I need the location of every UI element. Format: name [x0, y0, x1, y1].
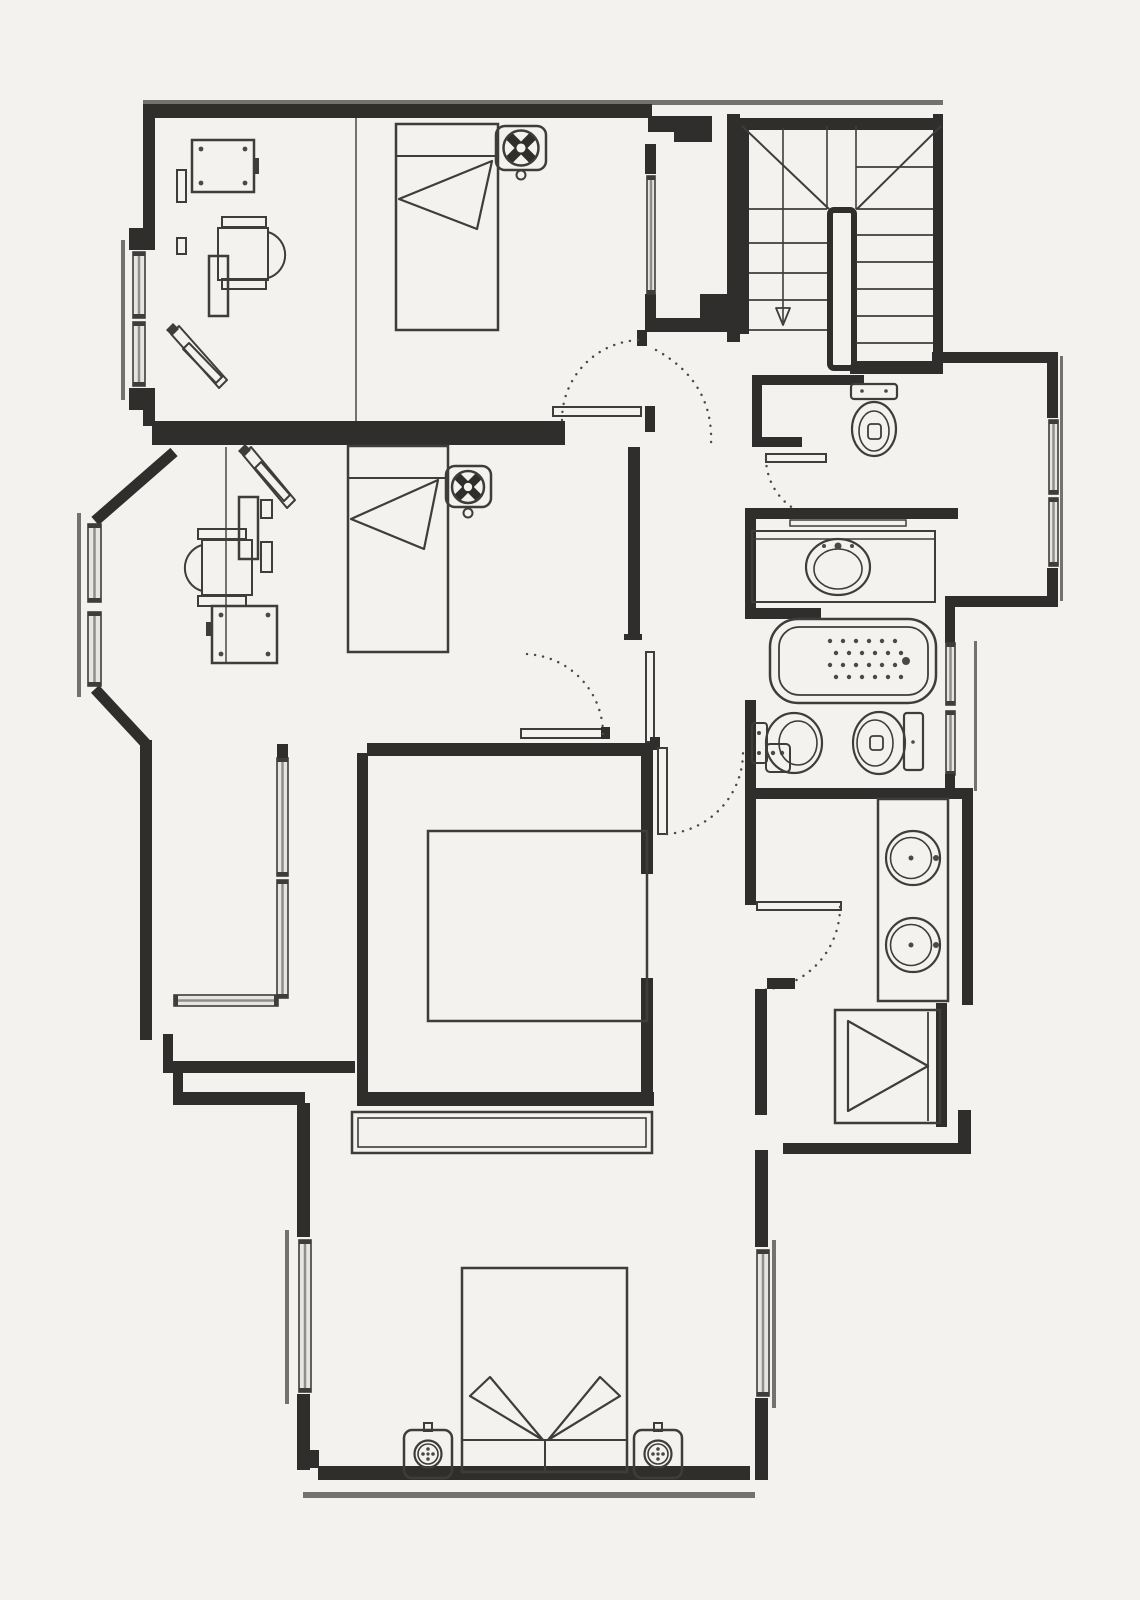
bathtub-antislip-dot [854, 663, 858, 667]
sill-bump-outer [1060, 356, 1063, 601]
toilet-bowl-inner [859, 411, 889, 451]
shower-triangle [848, 1021, 928, 1111]
window-bedroom1-lower-cap [133, 382, 145, 386]
window-closet-slider-cap [647, 176, 655, 180]
wall-terrace-glazing-nib [277, 744, 288, 758]
window-bath-right-2-cap [946, 711, 955, 715]
bedroom1-chair-back [268, 232, 285, 278]
wall-closet-inner-step [700, 294, 727, 320]
wall-closet-bottom [645, 318, 740, 332]
wall-bump-right-lower [1047, 568, 1058, 600]
bedroom1-bed-fold [399, 161, 492, 229]
door-hall-leaf [658, 748, 667, 834]
bedroom2-table-dot-1 [219, 613, 224, 618]
wall-basin-shelf [745, 508, 958, 519]
wall-dressing-top [367, 743, 653, 756]
bedroom2-table-dot-4 [266, 652, 271, 657]
wall-landing-foot [637, 330, 647, 346]
nightstand-left-lamp-dot [421, 1452, 425, 1456]
master-wardrobe-inner [358, 1118, 646, 1147]
wall-hall-right-1 [745, 519, 756, 609]
bedroom2-guitar-head [238, 444, 251, 457]
window-bump-lower-cap [1049, 498, 1058, 502]
window-terrace-horizontal-cap [174, 995, 178, 1006]
bedroom2-ceiling-fan-hub [464, 483, 472, 491]
arc-hall-door [667, 753, 743, 834]
master-bed-fold-right [548, 1377, 620, 1440]
bedroom2-bed-fold [351, 480, 438, 549]
wall-left-lower [140, 740, 152, 1040]
stairs-winder-diag-left [742, 126, 829, 209]
shower-tray [835, 1010, 940, 1123]
window-bedroom1-lower-cap [133, 322, 145, 326]
bathtub-antislip-dot [854, 639, 858, 643]
bedroom1-chair-bar-top [222, 217, 266, 227]
wall-bedroom1-left [143, 118, 155, 232]
bedroom1-ceiling-fan-knob [517, 171, 526, 180]
wall-bath-bottom [745, 788, 973, 799]
bedroom2-table-dot-2 [266, 613, 271, 618]
bathtub-antislip-dot [834, 675, 838, 679]
wall-wc-stub [752, 437, 802, 447]
basin-counter [752, 531, 935, 602]
wall-exterior-right-upper [933, 114, 943, 359]
sill-bay2-outer [77, 513, 81, 697]
wall-bump-right-upper [1047, 352, 1058, 418]
door-bedroom1-leaf [553, 407, 641, 416]
bedroom1-ceiling-fan-hub [516, 143, 525, 152]
window-bedroom2-upper-cap [88, 598, 101, 602]
wall-stairs-left [740, 118, 749, 334]
wall-hall-right-3 [745, 799, 756, 905]
master-bed-fold-left [470, 1377, 543, 1440]
floor-plan-page [0, 0, 1140, 1600]
bathtub-antislip-dot [873, 675, 877, 679]
wall-stairs-bottom-right [850, 361, 943, 374]
sill-bay1-outer [121, 240, 125, 400]
bathtub-antislip-dot [899, 675, 903, 679]
sill-bath-right-outer [974, 641, 977, 791]
window-bedroom2-lower-cap [88, 612, 101, 616]
nightstand-right-lamp-dot [656, 1447, 660, 1451]
nightstand-left-lamp-center [426, 1452, 429, 1455]
sill-master-right [772, 1240, 776, 1408]
toilet-tank-dot-1 [860, 389, 864, 393]
wall-closet-stairs-divider [727, 114, 740, 342]
bedroom1-table-tab [254, 158, 259, 174]
duct-dot-1 [771, 751, 775, 755]
bedroom2-zone-line [225, 447, 227, 663]
bedroom1-guitar-head [166, 323, 179, 336]
window-bath-right-1-cap [946, 643, 955, 647]
bathtub-antislip-dot [899, 651, 903, 655]
bathtub-antislip-dot [893, 663, 897, 667]
nightstand-right-lamp-center [656, 1452, 659, 1455]
nightstand-left-lamp-dot [431, 1452, 435, 1456]
bathtub-antislip-dot [880, 663, 884, 667]
wall-nib-bedroom1-door [645, 406, 655, 432]
bidet-dot-2 [757, 751, 761, 755]
window-bump-upper-cap [1049, 420, 1058, 424]
bathtub-antislip-dot [860, 675, 864, 679]
bathtub-antislip-dot [886, 675, 890, 679]
dots-landing-path [656, 350, 711, 445]
toilet-tank-dot-2 [884, 389, 888, 393]
wall-master-left-upper [297, 1103, 310, 1237]
line-master-bottom-outer [303, 1492, 755, 1498]
wall-right-stub-1 [945, 605, 955, 643]
wall-wc-left [752, 375, 762, 439]
bathtub-antislip-dot [847, 651, 851, 655]
window-master-right-cap [757, 1250, 769, 1254]
wall-wc-top [752, 375, 864, 385]
window-terrace-horizontal-cap [274, 995, 278, 1006]
nightstand-right-lamp-dot [661, 1452, 665, 1456]
wall-dressing-left [357, 753, 368, 1103]
bedroom1-table-dot-1 [199, 147, 204, 152]
window-bump-lower-cap [1049, 562, 1058, 566]
double-sink-counter [878, 799, 948, 1001]
bedroom1-wall-item-1 [177, 170, 186, 202]
bathtub-antislip-dot [860, 651, 864, 655]
sink-basin-1-faucet [933, 855, 939, 861]
bedroom1-wall-item-2 [177, 238, 186, 254]
window-bump-upper-cap [1049, 490, 1058, 494]
door-dressing-leaf [521, 729, 603, 738]
bedroom2-chair-back [185, 545, 202, 591]
bedroom2-wall-item-1 [261, 500, 272, 518]
bathtub-outer [770, 619, 936, 703]
window-terrace-vertical-upper-cap [277, 758, 288, 762]
window-master-left-cap [299, 1388, 311, 1392]
bathtub-antislip-dot [867, 663, 871, 667]
wall-bedroom2-right [628, 447, 640, 639]
wall-hall-right-2 [745, 700, 756, 792]
door-bedroom2-leaf [646, 652, 654, 742]
bathtub-antislip-dot [828, 663, 832, 667]
bedroom2-table-tab [206, 622, 211, 636]
wall-master-right-upper [755, 1150, 768, 1247]
sill-master-left [285, 1230, 289, 1404]
toilet-tank [851, 384, 897, 399]
bathtub-antislip-dot [880, 639, 884, 643]
wall-basin-bottom [745, 608, 821, 619]
bathtub-antislip-dot [893, 639, 897, 643]
nightstand-left-lamp-dot [426, 1447, 430, 1451]
bathtub-antislip-dot [841, 639, 845, 643]
bedroom1-bed [396, 124, 498, 330]
stairs-center-wall [830, 210, 854, 368]
bedroom1-table-dot-4 [243, 181, 248, 186]
toilet-flush [868, 424, 881, 439]
window-bedroom2-lower-cap [88, 682, 101, 686]
wall-master-topleft-exterior [173, 1092, 305, 1105]
bedroom2-guitar-neck [255, 462, 290, 501]
wall-closet-left-upper [645, 144, 656, 174]
door-wc-leaf [766, 454, 826, 462]
wall-bump-top [932, 352, 1058, 363]
window-bedroom1-upper-cap [133, 314, 145, 318]
bedroom2-bed [348, 446, 448, 652]
wall-master-left-step [303, 1450, 319, 1468]
window-bath-right-1-cap [946, 701, 955, 705]
wc2-flush [870, 736, 883, 750]
wall-bay2-diagonal-bottom [95, 689, 147, 745]
bedroom2-ceiling-fan-knob [464, 509, 473, 518]
bathtub-antislip-dot [834, 651, 838, 655]
bathtub-antislip-dot [828, 639, 832, 643]
bathtub-antislip-dot [873, 651, 877, 655]
bedroom2-chair-bar-bottom [198, 596, 246, 606]
bathtub-antislip-dot [841, 663, 845, 667]
arc-dressing-door [523, 654, 603, 734]
wall-shower-bottom [783, 1143, 971, 1154]
wall-bedroom-divider [152, 421, 565, 445]
wall-bay1-stub-top [129, 228, 155, 250]
bathtub-antislip-dot [886, 651, 890, 655]
nightstand-right-lamp-dot [651, 1452, 655, 1456]
washbasin-handle-2 [850, 544, 854, 548]
wall-master-right-lower [755, 1398, 768, 1480]
nightstand-right-lamp-dot [656, 1457, 660, 1461]
wc2-tank-dot [911, 740, 915, 744]
arc-sinkroom-door [757, 907, 840, 990]
wall-bedroom1-top [143, 104, 652, 118]
wall-terrace-bottom [163, 1061, 355, 1073]
sink-basin-2-faucet [933, 942, 939, 948]
window-master-right-cap [757, 1392, 769, 1396]
wc2-bowl-inner [857, 720, 893, 766]
window-closet-slider-cap [647, 290, 655, 294]
window-bedroom1-upper-cap [133, 252, 145, 256]
bathtub-antislip-dot [867, 639, 871, 643]
bathtub-drain [902, 657, 910, 665]
wall-closet-notch [648, 132, 674, 142]
dressing-island [428, 831, 647, 1021]
bedroom1-table-dot-3 [199, 181, 204, 186]
washbasin-handle-1 [822, 544, 826, 548]
door-sinkroom-leaf [757, 902, 841, 910]
washbasin-inner [814, 549, 862, 589]
window-master-left-cap [299, 1240, 311, 1244]
sink-basin-2-center [909, 943, 914, 948]
bedroom1-zone-line [355, 118, 357, 421]
bedroom1-table-dot-2 [243, 147, 248, 152]
floor-plan-canvas [0, 0, 1140, 1600]
window-bedroom2-upper-cap [88, 524, 101, 528]
basin-mirror [790, 520, 906, 526]
window-terrace-vertical-lower-cap [277, 880, 288, 884]
bathtub-antislip-dot [847, 675, 851, 679]
wall-dressing-bottom [357, 1092, 654, 1106]
wall-shower-right [936, 1003, 947, 1127]
wall-shower-top-stub [767, 978, 795, 989]
nightstand-left-lamp-dot [426, 1457, 430, 1461]
wall-bedroom2-right-cap [624, 634, 642, 640]
wall-bay2-diagonal-top [95, 452, 174, 521]
bedroom1-guitar-body [171, 326, 227, 388]
sink-basin-1-center [909, 856, 914, 861]
bedroom2-wall-item-2 [261, 542, 272, 572]
window-terrace-vertical-upper-cap [277, 872, 288, 876]
wall-shower-left [755, 989, 767, 1115]
bedroom2-table-dot-3 [219, 652, 224, 657]
bedroom1-chair-seat [218, 228, 268, 280]
wall-shower-corner [958, 1110, 971, 1154]
wall-sinkroom-right [962, 799, 973, 1005]
bedroom1-guitar-neck [183, 343, 222, 383]
wall-stairs-top [740, 118, 943, 130]
wall-bump-bottom [945, 596, 1058, 607]
bidet-dot-1 [757, 731, 761, 735]
washbasin-faucet [835, 543, 842, 550]
